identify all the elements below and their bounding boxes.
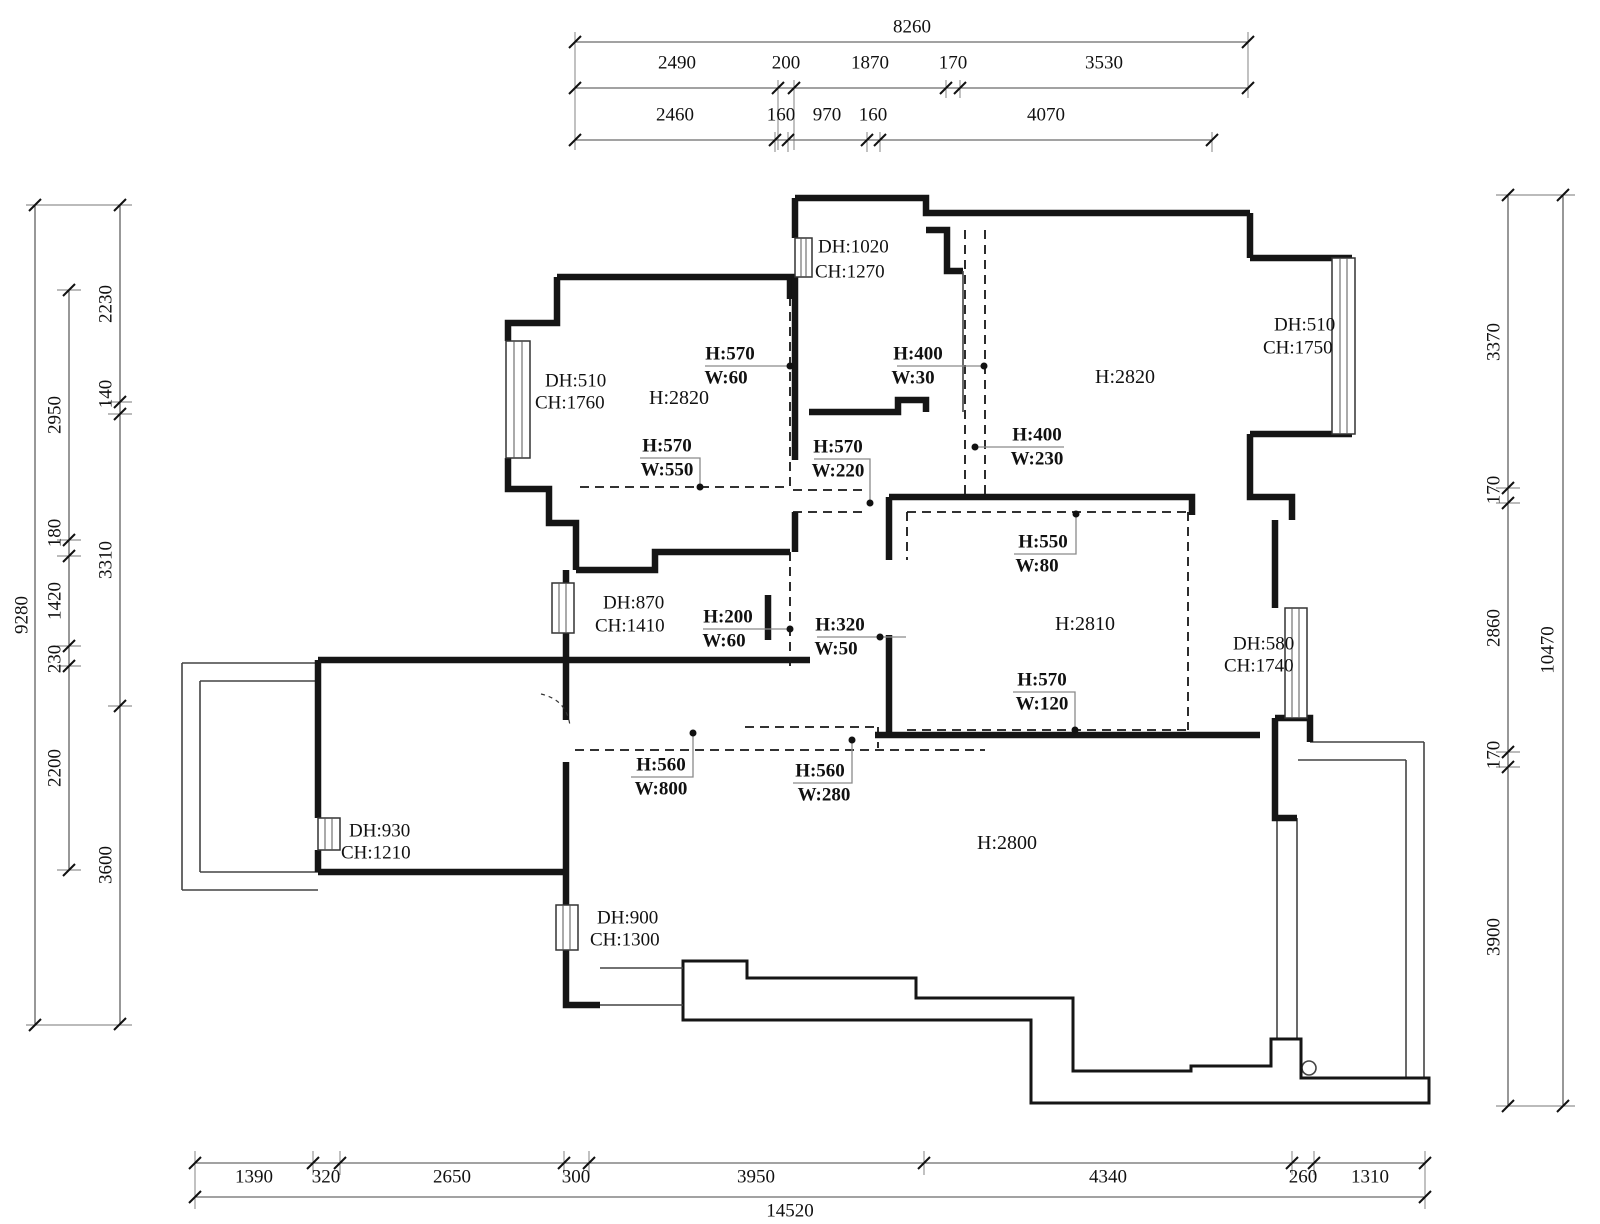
beam-b7-w: W:60 — [702, 632, 745, 651]
beam-b5-w: W:230 — [1011, 450, 1064, 469]
room-height-upper-left: H:2820 — [649, 388, 709, 408]
dim-right-3: 170 — [1485, 741, 1504, 770]
dim-bot-6: 260 — [1289, 1168, 1318, 1187]
dim-right-2: 2860 — [1485, 609, 1504, 647]
dim-top-r3-3: 160 — [859, 106, 888, 125]
dashed-lines — [575, 230, 1188, 750]
window-label-ch-mid-right: CH:1740 — [1224, 657, 1294, 676]
dim-left-b1: 180 — [46, 519, 65, 548]
window-mid-left — [552, 583, 574, 633]
beam-b3-w: W:550 — [641, 461, 694, 480]
window-upper-left — [506, 341, 530, 458]
dim-right-total: 10470 — [1539, 626, 1558, 674]
window-label-dh-mid-left: DH:870 — [603, 594, 664, 613]
dim-top-r2-3: 170 — [939, 54, 968, 73]
window-living — [556, 905, 578, 950]
beam-b2-h: H:400 — [893, 345, 943, 364]
dim-top-r2-1: 200 — [772, 54, 801, 73]
beam-b7-h: H:200 — [703, 608, 753, 627]
dim-left-a1: 140 — [97, 380, 116, 409]
dim-right-1: 170 — [1485, 476, 1504, 505]
dim-top-r2-2: 1870 — [851, 54, 889, 73]
beam-b10-h: H:560 — [636, 756, 686, 775]
dim-bot-1: 320 — [312, 1168, 341, 1187]
beam-b6-w: W:80 — [1015, 557, 1058, 576]
dim-bot-7: 1310 — [1351, 1168, 1389, 1187]
dim-bot-2: 2650 — [433, 1168, 471, 1187]
window-label-dh-entry: DH:1020 — [818, 238, 889, 257]
beam-b10-w: W:800 — [635, 780, 688, 799]
window-label-dh-living: DH:900 — [597, 909, 658, 928]
dim-top-r3-2: 970 — [813, 106, 842, 125]
dim-right-4: 3900 — [1485, 918, 1504, 956]
dim-top-r2-4: 3530 — [1085, 54, 1123, 73]
window-bay-right — [1332, 258, 1355, 434]
window-entry — [795, 238, 812, 277]
dim-left-a0: 2230 — [97, 285, 116, 323]
window-label-dh-mid-right: DH:580 — [1233, 635, 1294, 654]
beam-b1-h: H:570 — [705, 345, 755, 364]
dim-bot-3: 300 — [562, 1168, 591, 1187]
dim-top-r3-4: 4070 — [1027, 106, 1065, 125]
window-label-ch-mid-left: CH:1410 — [595, 617, 665, 636]
room-height-living: H:2800 — [977, 833, 1037, 853]
room-height-mid-right: H:2810 — [1055, 614, 1115, 634]
dim-bot-0: 1390 — [235, 1168, 273, 1187]
dim-bot-5: 4340 — [1089, 1168, 1127, 1187]
beam-b9-h: H:570 — [1017, 671, 1067, 690]
dim-bot-4: 3950 — [737, 1168, 775, 1187]
window-label-ch-living: CH:1300 — [590, 931, 660, 950]
beam-b5-h: H:400 — [1012, 426, 1062, 445]
balcony-right — [1277, 742, 1424, 1082]
dimension-lines — [26, 32, 1575, 1209]
beam-b3-h: H:570 — [642, 437, 692, 456]
beam-b2-w: W:30 — [891, 369, 934, 388]
balcony-left — [182, 663, 318, 890]
dim-left-a3: 3600 — [97, 846, 116, 884]
dim-top-r2-0: 2490 — [658, 54, 696, 73]
window-label-dh-bottom-left: DH:930 — [349, 822, 410, 841]
beam-b4-h: H:570 — [813, 438, 863, 457]
beam-b6-h: H:550 — [1018, 533, 1068, 552]
dim-top-r3-0: 2460 — [656, 106, 694, 125]
beam-b8-h: H:320 — [815, 616, 865, 635]
dim-bottom-total: 14520 — [766, 1202, 814, 1221]
dim-top-total: 8260 — [893, 18, 931, 37]
window-label-ch-bottom-left: CH:1210 — [341, 844, 411, 863]
room-height-upper-right: H:2820 — [1095, 367, 1155, 387]
window-label-ch-entry: CH:1270 — [815, 263, 885, 282]
dim-top-r3-1: 160 — [767, 106, 796, 125]
dim-left-a2: 3310 — [97, 541, 116, 579]
dim-left-b4: 2200 — [46, 749, 65, 787]
dim-left-total: 9280 — [13, 596, 32, 634]
window-label-ch-bay: CH:1750 — [1263, 339, 1333, 358]
floor-plan-canvas: 8260 2490 200 1870 170 3530 2460 160 970… — [0, 0, 1600, 1224]
windows — [318, 238, 1355, 950]
beam-b11-h: H:560 — [795, 762, 845, 781]
bottom-exterior-wall — [683, 961, 1429, 1103]
window-label-ch-upper-left: CH:1760 — [535, 394, 605, 413]
beam-b1-w: W:60 — [704, 369, 747, 388]
dim-left-b0: 2950 — [46, 396, 65, 434]
beam-b11-w: W:280 — [798, 786, 851, 805]
floor-plan-drawing — [0, 0, 1600, 1224]
dim-right-0: 3370 — [1485, 323, 1504, 361]
beam-b8-w: W:50 — [814, 640, 857, 659]
window-label-dh-bay: DH:510 — [1274, 316, 1335, 335]
beam-b4-w: W:220 — [812, 462, 865, 481]
window-label-dh-upper-left: DH:510 — [545, 372, 606, 391]
dim-left-b3: 230 — [46, 645, 65, 674]
window-bottom-left — [318, 818, 340, 850]
drain-symbol — [1302, 1061, 1316, 1075]
beam-b9-w: W:120 — [1016, 695, 1069, 714]
dim-left-b2: 1420 — [46, 582, 65, 620]
